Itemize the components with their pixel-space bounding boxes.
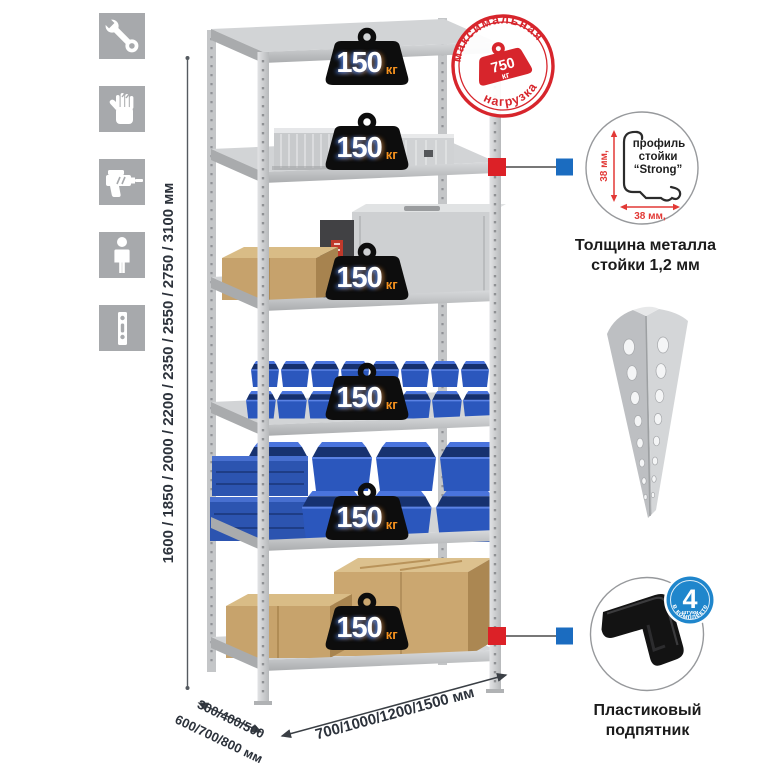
assembly-tile xyxy=(99,13,145,59)
badge-unit: кг xyxy=(386,397,398,412)
drill-tile xyxy=(99,159,145,205)
thickness-caption-line2: стойки 1,2 мм xyxy=(563,256,728,276)
wrench-icon xyxy=(99,13,145,59)
foot-caption: Пластиковый подпятник xyxy=(565,701,730,740)
profile-text: профиль стойки “Strong” xyxy=(633,138,686,176)
person-icon xyxy=(99,232,145,278)
svg-text:стойки: стойки xyxy=(639,151,678,163)
weight-badge-2: 150кг xyxy=(319,112,415,174)
callout-connector-bottom xyxy=(488,627,573,645)
svg-text:“Strong”: “Strong” xyxy=(634,164,683,176)
thickness-caption-line1: Толщина металла xyxy=(563,236,728,256)
foot-caption-line2: подпятник xyxy=(565,721,730,741)
height-dimension-label: 1600 / 1850 / 2000 / 2200 / 2350 / 2550 … xyxy=(160,183,177,564)
drill-icon xyxy=(99,159,145,205)
badge-unit: кг xyxy=(386,277,398,292)
thickness-caption: Толщина металла стойки 1,2 мм xyxy=(563,236,728,275)
page-background: 1600 / 1850 / 2000 / 2200 / 2350 / 2550 … xyxy=(0,0,765,765)
badge-value: 150 xyxy=(336,262,381,295)
profile-strip-tile xyxy=(99,305,145,351)
weight-badge-3: 150кг xyxy=(319,242,415,304)
badge-unit: кг xyxy=(386,62,398,77)
weight-badge-5: 150кг xyxy=(319,482,415,544)
badge-value: 150 xyxy=(336,47,381,80)
foot-caption-line1: Пластиковый xyxy=(565,701,730,721)
red-marker-bottom xyxy=(488,627,506,645)
weight-badge-6: 150кг xyxy=(319,592,415,654)
badge-unit: кг xyxy=(386,627,398,642)
corner-post-image xyxy=(595,295,700,530)
badge-unit: кг xyxy=(386,517,398,532)
svg-text:38 мм,: 38 мм, xyxy=(634,211,666,222)
callout-connector-top xyxy=(488,158,573,176)
svg-text:профиль: профиль xyxy=(633,138,686,150)
foot-detail-circle: 4 штуки в комплекте xyxy=(584,568,720,702)
blue-marker-top xyxy=(556,159,573,176)
person-tile xyxy=(99,232,145,278)
badge-value: 150 xyxy=(336,612,381,645)
weight-badge-1: 150кг xyxy=(319,27,415,89)
red-marker-top xyxy=(488,158,506,176)
height-dimension-line: 1600 / 1850 / 2000 / 2200 / 2350 / 2550 … xyxy=(160,56,190,690)
perforated-strip-icon xyxy=(99,305,145,351)
quantity-badge: 4 штуки в комплекте xyxy=(664,574,716,626)
badge-value: 150 xyxy=(336,382,381,415)
badge-value: 150 xyxy=(336,502,381,535)
gloves-tile xyxy=(99,86,145,132)
badge-unit: кг xyxy=(386,147,398,162)
badge-value: 150 xyxy=(336,132,381,165)
max-load-stamp: максимальная нагрузка 750 кг xyxy=(442,5,564,127)
weight-badge-4: 150кг xyxy=(319,362,415,424)
gloves-icon xyxy=(99,86,145,132)
svg-text:38 мм,: 38 мм, xyxy=(599,150,610,182)
blue-marker-bottom xyxy=(556,628,573,645)
depth-dimension-line: 300/400/500 600/700/800 мм xyxy=(173,697,267,765)
width-dimension-label: 700/1000/1200/1500 мм xyxy=(313,684,476,743)
profile-detail-circle: 38 мм, 38 мм, профиль стойки “Strong” xyxy=(580,108,708,230)
width-dimension-line: 700/1000/1200/1500 мм xyxy=(282,675,506,743)
